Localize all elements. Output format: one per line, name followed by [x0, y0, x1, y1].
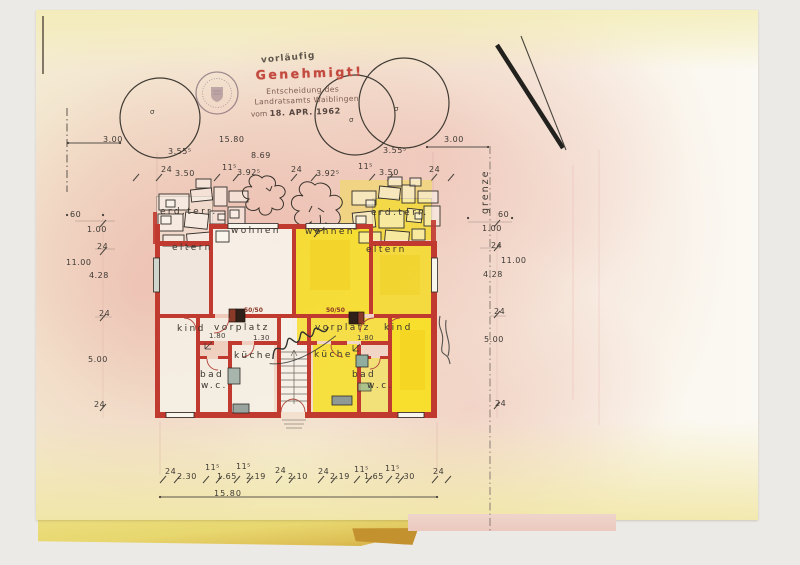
diagonal-boundary-wedge — [497, 36, 566, 150]
stamp-title: Genehmigt! — [255, 64, 363, 83]
scanned-floor-plan-document: { "stamp": { "pre": "vorläufig", "title"… — [0, 0, 800, 565]
stamp-date: 18. APR. 1962 — [269, 106, 340, 117]
seal-crest — [211, 87, 223, 102]
official-seal — [194, 70, 240, 116]
approval-stamp: vorläufig Genehmigt! Entscheidung des La… — [249, 49, 401, 124]
bottom-total-dimension: 15.80 — [214, 489, 242, 498]
grenze-boundary-label: grenze — [480, 170, 491, 214]
stamp-date-line: vom 18. APR. 1962 — [251, 106, 341, 118]
stamp-date-prefix: vom — [251, 109, 268, 119]
stamp-preliminary-text: vorläufig — [261, 51, 316, 66]
